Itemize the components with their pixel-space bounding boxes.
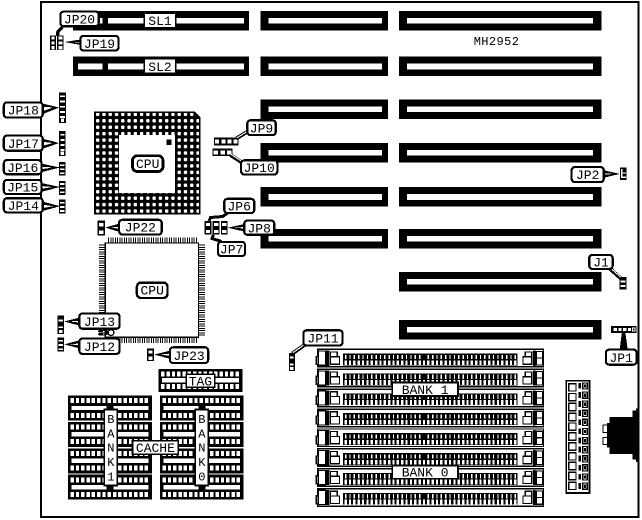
svg-text:JP19: JP19 [84,37,115,52]
svg-text:MH2952: MH2952 [474,35,520,49]
svg-text:B: B [107,413,114,427]
svg-text:K: K [107,456,115,470]
svg-text:JP11: JP11 [307,332,338,347]
svg-text:JP17: JP17 [8,137,39,152]
svg-text:CPU: CPU [136,157,159,172]
svg-text:SL1: SL1 [148,14,172,29]
svg-text:1: 1 [107,470,114,484]
svg-text:N: N [198,442,205,456]
svg-text:JP9: JP9 [250,121,273,136]
svg-text:CPU: CPU [140,284,163,299]
svg-text:JP15: JP15 [7,181,38,196]
svg-text:CACHE: CACHE [136,441,175,456]
svg-text:JP13: JP13 [84,315,115,330]
svg-text:JP7: JP7 [220,243,243,258]
svg-text:JP14: JP14 [8,199,39,214]
svg-text:J1: J1 [593,256,609,271]
svg-text:K: K [198,456,206,470]
svg-text:B: B [198,413,205,427]
svg-text:A: A [107,427,115,441]
svg-text:SL2: SL2 [148,60,171,75]
svg-text:JP16: JP16 [7,161,38,176]
svg-text:JP2: JP2 [576,168,599,183]
svg-text:JP22: JP22 [125,221,156,236]
svg-text:JP20: JP20 [64,13,95,28]
svg-text:JP6: JP6 [227,200,250,215]
svg-text:JP18: JP18 [8,104,39,119]
svg-text:N: N [107,442,114,456]
svg-text:A: A [198,427,206,441]
svg-text:0: 0 [198,470,205,484]
svg-text:BANK 1: BANK 1 [402,383,449,398]
svg-text:BANK 0: BANK 0 [402,466,449,481]
svg-text:JP8: JP8 [247,221,270,236]
svg-text:TAG: TAG [189,374,212,389]
svg-text:JP10: JP10 [244,161,275,176]
svg-text:JP23: JP23 [173,349,204,364]
svg-text:JP1: JP1 [609,351,633,366]
svg-text:JP12: JP12 [84,340,115,355]
